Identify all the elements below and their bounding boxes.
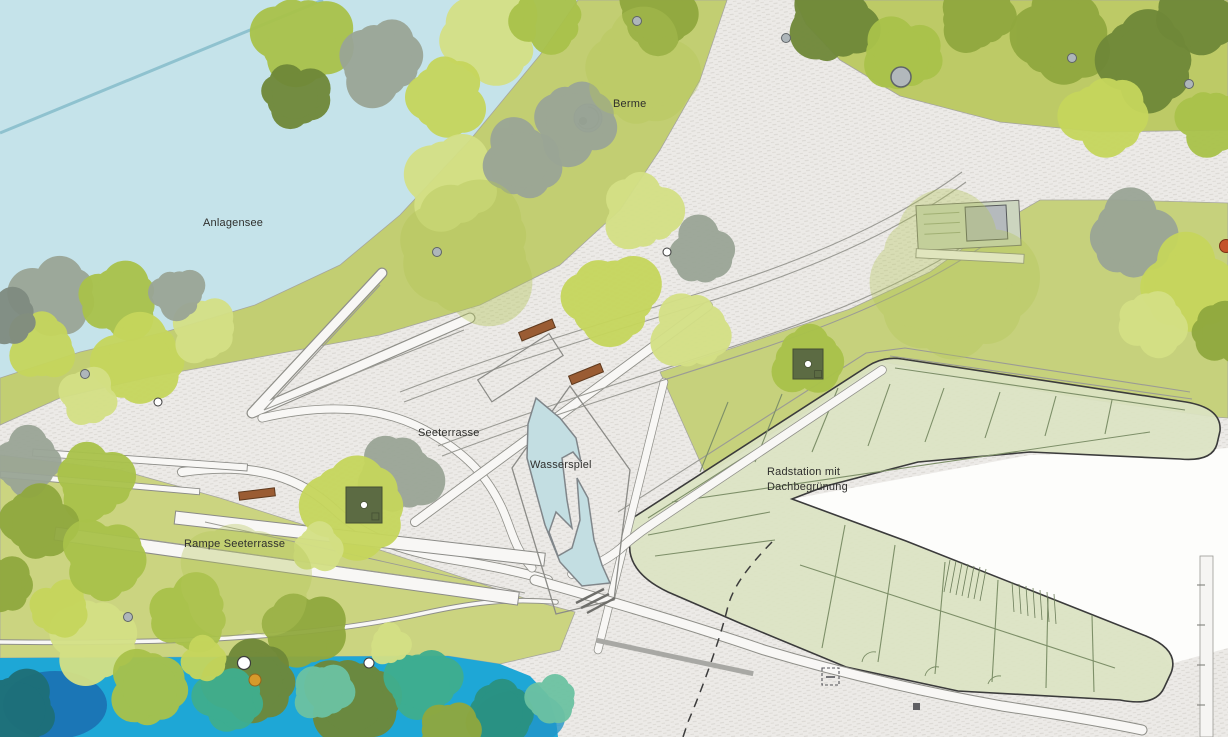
label-seeterrasse: Seeterrasse [418, 427, 480, 439]
tree-planter [793, 349, 823, 379]
site-plan: Anlagensee Berme Seeterrasse Wasserspiel… [0, 0, 1228, 737]
label-anlagensee: Anlagensee [203, 217, 263, 229]
tree-trunk-marker [238, 657, 251, 670]
tree-trunk-marker [249, 674, 261, 686]
tree-trunk-marker [633, 17, 642, 26]
tree-trunk-marker [154, 398, 162, 406]
tree-trunk-marker [433, 248, 442, 257]
label-radstation-2: Dachbegrünung [767, 481, 848, 493]
tree-planter [346, 487, 382, 523]
tree-trunk-marker [364, 658, 374, 668]
label-radstation-1: Radstation mit [767, 466, 840, 478]
tree-trunk-marker [1185, 80, 1194, 89]
tree-trunk-marker [1068, 54, 1077, 63]
tree-trunk-marker [1220, 240, 1228, 253]
tree-trunk-marker [891, 67, 911, 87]
site-plan-canvas: Anlagensee Berme Seeterrasse Wasserspiel… [0, 0, 1228, 737]
tree-trunk-marker [81, 370, 90, 379]
label-rampe-seeterrasse: Rampe Seeterrasse [184, 538, 285, 550]
edge-strip [1200, 556, 1213, 737]
tree-trunk-marker [124, 613, 133, 622]
label-wasserspiel: Wasserspiel [530, 459, 592, 471]
label-berme: Berme [613, 98, 646, 110]
small-square-marker [913, 703, 920, 710]
tree-trunk-marker [782, 34, 791, 43]
tree-trunk-marker [663, 248, 671, 256]
